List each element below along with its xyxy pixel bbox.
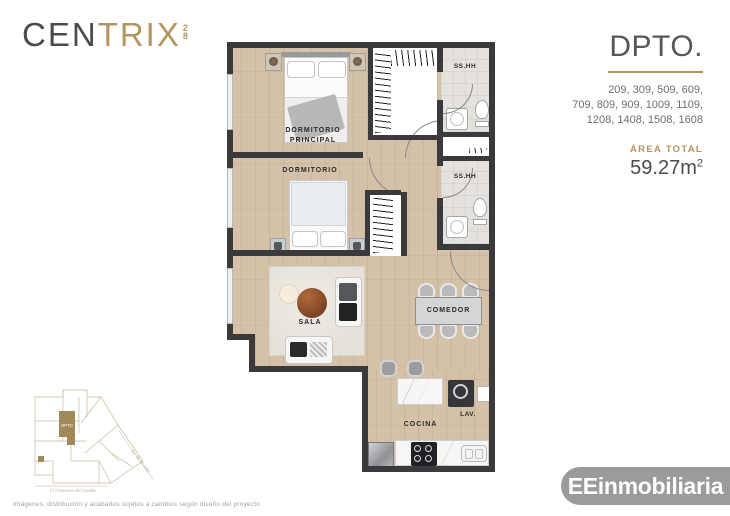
sink-1-basin [450, 112, 464, 126]
shaft-ticks [469, 148, 487, 153]
kitchen-label: COCINA [383, 420, 458, 430]
window [227, 168, 233, 228]
kitchen-sink-bowl [475, 449, 483, 459]
bedroom-pillow-left [292, 231, 318, 247]
logo-number-bottom: 8 [183, 32, 190, 40]
unit-numbers-line3: 1208, 1408, 1508, 1608 [572, 113, 703, 128]
logo-number: 2 8 [183, 24, 190, 40]
sink-2-basin [450, 220, 464, 234]
lamp-right [353, 57, 362, 66]
side-table [279, 284, 299, 304]
window [227, 74, 233, 130]
wall [227, 42, 495, 48]
company-logo: EEinmobiliaria [561, 467, 730, 505]
key-plan: DPTO C/ Francisco del Castillo Av. 28 de… [15, 383, 165, 497]
wall [401, 192, 407, 256]
area-total-value: 59.27m2 [572, 157, 703, 180]
street-label-right: Av. 28 de Julio [130, 449, 151, 474]
logo-suffix: TRIX [98, 16, 181, 54]
closet-hangers-side [375, 50, 391, 133]
floor-plan: DORMITORIO PRINCIPAL DORMITORIO SALA COM… [225, 40, 503, 480]
bathroom2-label: SS.HH [441, 172, 489, 182]
unit-numbers: 209, 309, 509, 609, 709, 809, 909, 1009,… [572, 83, 703, 128]
key-plan-unit-highlight [59, 411, 75, 445]
key-plan-unit-label: DPTO [61, 423, 73, 428]
bedroom-blanket [291, 182, 346, 226]
wall [437, 132, 491, 137]
wall [362, 366, 368, 472]
flyer-page: CENTRIX 2 8 DPTO. 209, 309, 509, 609, 70… [0, 0, 730, 516]
bar-stool [407, 360, 424, 377]
stove-burner [425, 455, 432, 462]
wall [227, 250, 368, 256]
master-bedroom-label-line2: PRINCIPAL [253, 136, 373, 146]
gold-divider [608, 71, 703, 73]
street-label-bottom: C/ Francisco del Castillo [50, 488, 97, 493]
dining-chair [418, 324, 435, 339]
sofa-cushion-dark [290, 342, 307, 357]
bedroom-lamp-right [353, 242, 361, 250]
kitchen-island [397, 378, 443, 405]
dining-chair [440, 283, 457, 298]
bar-stool [380, 360, 397, 377]
armchair-cushion-bottom [339, 303, 357, 321]
stove-burner [425, 445, 432, 452]
coffee-table [297, 288, 327, 318]
unit-numbers-line2: 709, 809, 909, 1009, 1109, [572, 98, 703, 113]
bedroom-closet-hangers [373, 198, 393, 253]
toilet-2-bowl [473, 198, 487, 217]
refrigerator [368, 442, 394, 469]
wall [437, 156, 495, 161]
area-number: 59.27m [630, 157, 697, 179]
wall [362, 466, 495, 472]
dining-label: COMEDOR [415, 306, 482, 316]
wall [365, 190, 401, 195]
duct-shaft [441, 137, 489, 156]
company-name: EEinmobiliaria [568, 473, 724, 500]
dining-chair [418, 283, 435, 298]
unit-numbers-line1: 209, 309, 509, 609, [572, 83, 703, 98]
washing-machine-door [453, 384, 468, 399]
area-exponent: 2 [697, 157, 703, 169]
sofa-cushion-checkered [310, 342, 327, 357]
toilet-2-tank [473, 219, 487, 225]
key-plan-unit-secondary [38, 456, 44, 462]
wall [437, 244, 495, 250]
wall [489, 42, 495, 472]
logo-prefix: CEN [22, 16, 98, 54]
dining-chair [462, 324, 479, 339]
toilet-1-tank [475, 121, 489, 127]
wall [368, 135, 441, 140]
bedroom-label: DORMITORIO [250, 166, 370, 176]
disclaimer-text: Imágenes, distribución y acabados sujeto… [13, 501, 260, 508]
master-bedroom-label-line1: DORMITORIO [253, 126, 373, 136]
laundry-label: LAV. [450, 410, 486, 420]
lamp-left [269, 57, 278, 66]
kitchen-sink-bowl [465, 449, 473, 459]
closet-hangers-top [391, 50, 435, 66]
armchair-cushion-top [339, 283, 357, 301]
window [227, 268, 233, 324]
wall [249, 366, 368, 372]
area-total-label: ÁREA TOTAL [572, 144, 703, 155]
unit-info-block: DPTO. 209, 309, 509, 609, 709, 809, 909,… [572, 30, 703, 180]
wall [227, 152, 363, 158]
key-plan-outline [35, 390, 153, 486]
bathroom1-label: SS.HH [441, 62, 489, 72]
stove-burner [414, 455, 421, 462]
bedroom-pillow-right [320, 231, 346, 247]
master-pillow-left [287, 61, 315, 78]
dining-chair [440, 324, 457, 339]
master-bedroom-label: DORMITORIO PRINCIPAL [253, 126, 373, 146]
living-label: SALA [280, 318, 340, 328]
bedroom-lamp-left [274, 242, 282, 250]
centrix-logo: CENTRIX 2 8 [22, 16, 190, 54]
wall [365, 190, 370, 256]
master-pillow-right [318, 61, 346, 78]
toilet-1-bowl [475, 100, 489, 119]
wall [437, 198, 443, 250]
unit-title: DPTO. [572, 30, 703, 64]
stove-burner [414, 445, 421, 452]
